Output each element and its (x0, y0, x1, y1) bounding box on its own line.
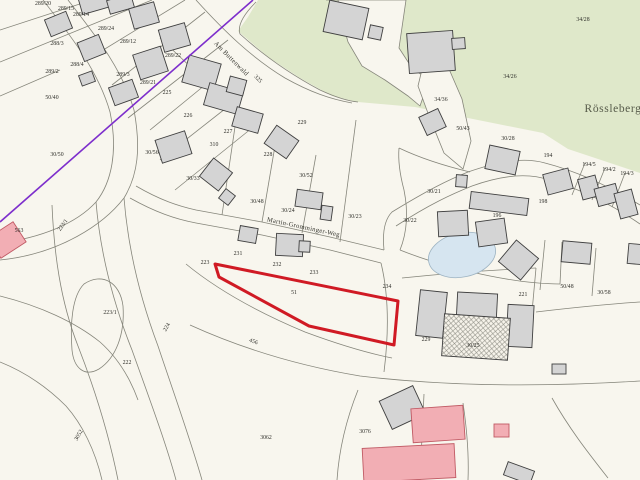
parcel-number-label: 194 (544, 153, 553, 159)
public-building (362, 444, 456, 480)
building (452, 38, 466, 50)
building (561, 241, 592, 264)
parcel-number-label: 50/43 (456, 126, 469, 132)
parcel-number-label: 289/15 (58, 6, 74, 12)
parcel-number-label: 30/48 (250, 199, 263, 205)
building (475, 218, 507, 247)
building (627, 243, 640, 264)
parcel-number-label: 288/3 (50, 41, 63, 47)
building (407, 30, 456, 73)
parcel-number-label: 289/21 (140, 80, 156, 86)
parcel-number-label: 30/24 (281, 208, 294, 214)
parcel-number-label: 223/1 (103, 310, 116, 316)
building (456, 175, 468, 188)
building (320, 205, 333, 220)
parcel-number-label: 3062 (260, 435, 272, 441)
parcel-number-label: 3076 (359, 429, 371, 435)
building (295, 189, 323, 209)
parcel-number-label: 225 (163, 90, 172, 96)
parcel-number-label: 30/58 (597, 290, 610, 296)
map-viewport[interactable]: 289/20289/15289/14289/24289/12288/3288/4… (0, 0, 640, 480)
parcel-number-label: 194/2 (602, 167, 615, 173)
parcel-number-label: 227 (224, 129, 233, 135)
parcel-number-label: 289/14 (73, 12, 89, 18)
parcel-number-label: 289/12 (120, 39, 136, 45)
building (368, 25, 383, 40)
building (238, 226, 258, 244)
parcel-number-label: 194/3 (620, 171, 633, 177)
parcel-number-label: 232 (273, 262, 282, 268)
parcel-number-label: 30/22 (403, 218, 416, 224)
building (437, 210, 468, 237)
area-name-label: Rössleberg (585, 103, 640, 115)
parcel-number-label: 222 (123, 360, 132, 366)
parcel-number-label: 194/5 (582, 162, 595, 168)
public-building (494, 424, 509, 437)
parcel-number-label: 233 (310, 270, 319, 276)
parcel-number-label: 289/24 (98, 26, 114, 32)
parcel-number-label: 231 (234, 251, 243, 257)
parcel-number-label: 30/33 (186, 176, 199, 182)
parcel-number-label: 34/36 (434, 97, 447, 103)
parcel-number-label: 229 (422, 337, 431, 343)
parcel-number-label: 229 (298, 120, 307, 126)
parcel-number-label: 310 (210, 142, 219, 148)
parcel-number-label: 30/23 (348, 214, 361, 220)
parcel-number-label: 196 (493, 213, 502, 219)
building (552, 364, 566, 374)
parcel-number-label: 30/56 (145, 150, 158, 156)
parcel-number-label: 289/2 (45, 69, 58, 75)
parcel-number-label: 234 (383, 284, 392, 290)
parcel-number-label: 30/28 (501, 136, 514, 142)
parcel-number-label: 289/3 (116, 72, 129, 78)
parcel-number-label: 563 (15, 228, 24, 234)
parcel-number-label: 221 (519, 292, 528, 298)
parcel-number-label: 30/21 (427, 189, 440, 195)
parcel-number-label: 50/40 (45, 95, 58, 101)
cadastral-map[interactable]: 289/20289/15289/14289/24289/12288/3288/4… (0, 0, 640, 480)
parcel-number-label: 228 (264, 152, 273, 158)
parcel-number-label: 226 (184, 113, 193, 119)
building (416, 290, 448, 339)
parcel-number-label: 289/22 (165, 53, 181, 59)
parcel-number-label: 198 (539, 199, 548, 205)
parcel-number-label: 30/52 (299, 173, 312, 179)
parcel-number-label: 30/25 (466, 343, 479, 349)
building-hatched (442, 314, 511, 361)
selected-parcel-number-label: 51 (291, 290, 297, 296)
parcel-number-label: 34/28 (576, 17, 589, 23)
parcel-number-label: 223 (201, 260, 210, 266)
building (299, 241, 311, 253)
parcel-number-label: 34/26 (503, 74, 516, 80)
parcel-number-label: 289/20 (35, 1, 51, 7)
parcel-number-label: 50/48 (560, 284, 573, 290)
public-building (411, 405, 465, 443)
parcel-number-label: 288/4 (70, 62, 83, 68)
parcel-number-label: 30/50 (50, 152, 63, 158)
